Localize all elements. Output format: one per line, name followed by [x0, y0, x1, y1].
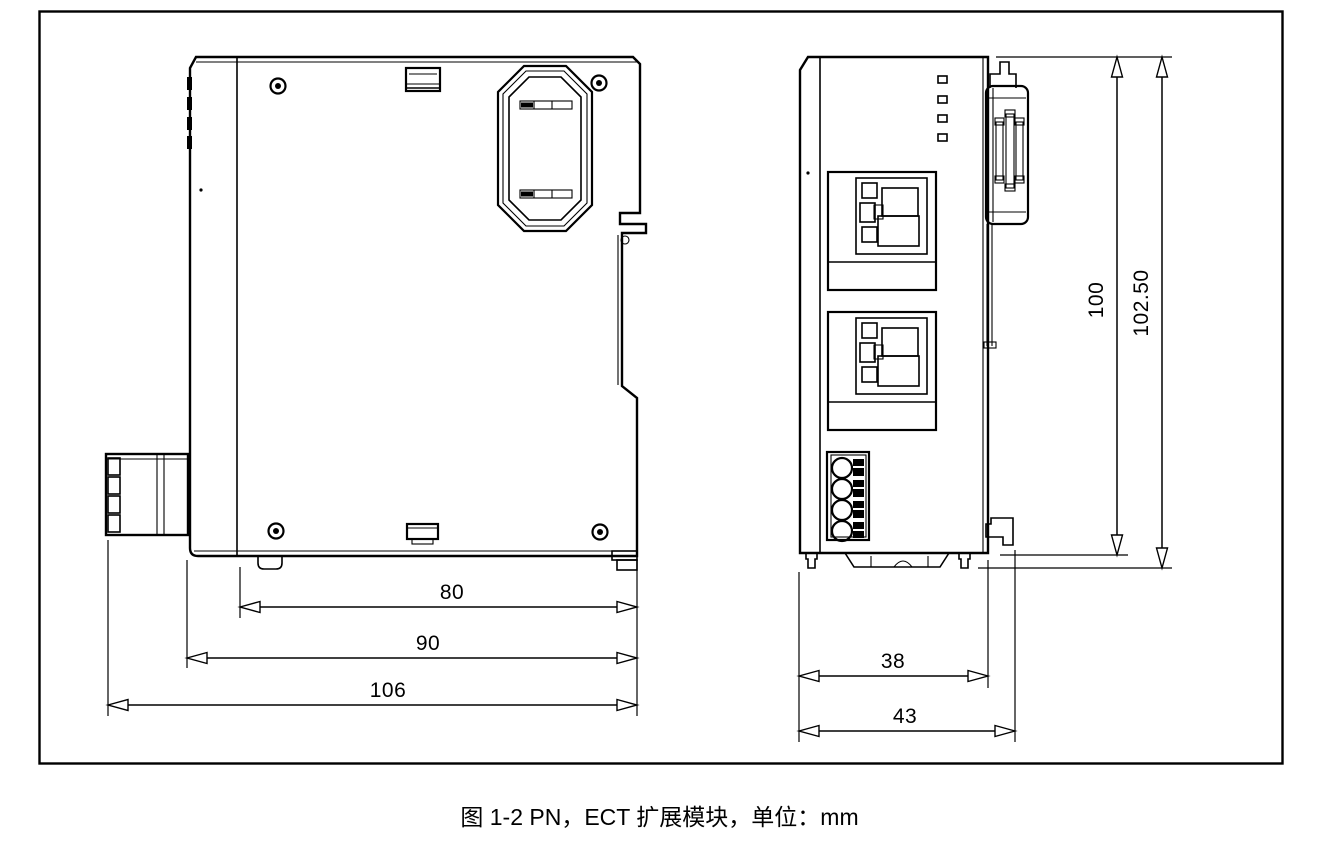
surface-dot-2 [806, 171, 809, 174]
dim-label-106: 106 [370, 679, 407, 702]
dim-label-100: 100 [1085, 282, 1108, 319]
surface-dot [199, 188, 202, 191]
dim-label-102-50: 102.50 [1130, 269, 1153, 336]
dim-label-43: 43 [893, 705, 917, 728]
technical-drawing: 80 90 106 [0, 0, 1319, 790]
front-view-body [800, 57, 988, 553]
side-view-body [190, 57, 646, 556]
terminal-block-side [106, 454, 188, 535]
dim-label-80: 80 [440, 581, 464, 604]
dim-label-90: 90 [416, 632, 440, 655]
dim-label-38: 38 [881, 650, 905, 673]
figure-caption: 图 1-2 PN，ECT 扩展模块，单位：mm [0, 798, 1319, 832]
figure-page: 80 90 106 [0, 0, 1319, 861]
